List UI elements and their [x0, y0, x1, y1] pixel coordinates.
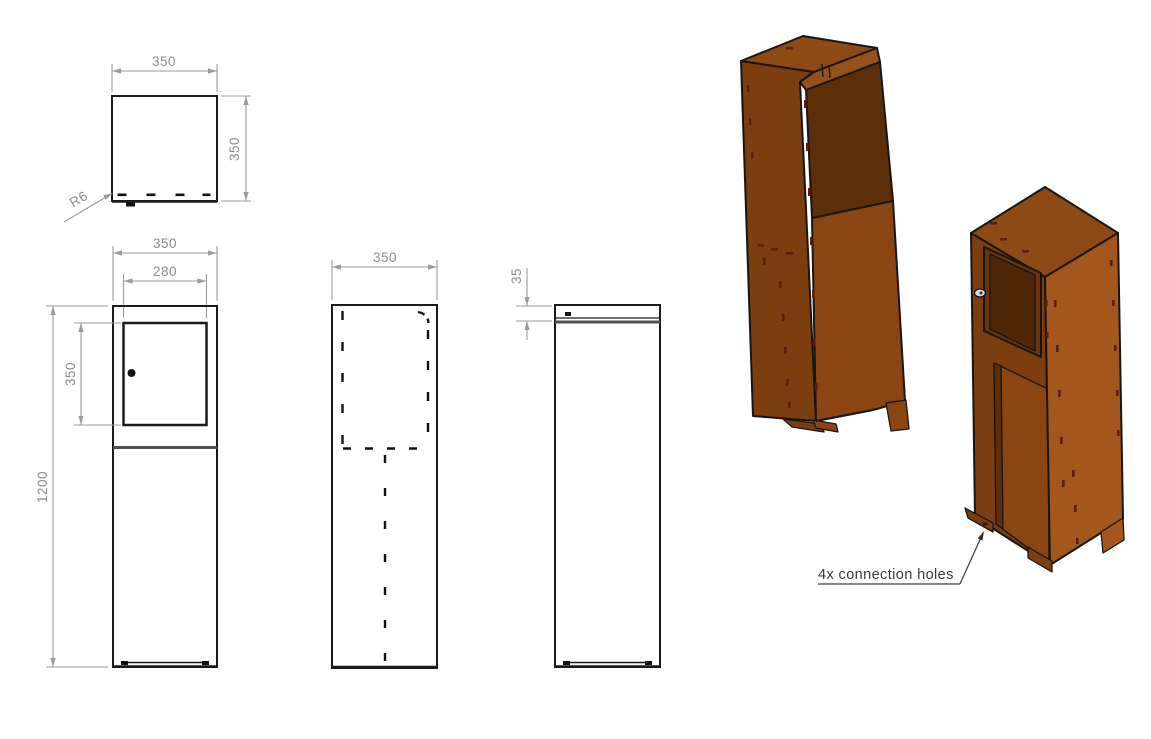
- dim-top-depth: 350: [227, 137, 242, 161]
- annotation-arrow: [978, 531, 984, 541]
- weld-tab: [749, 118, 751, 125]
- weld-tab: [763, 258, 766, 265]
- weld-tab: [1114, 345, 1117, 351]
- iso1-slot-tick: [822, 64, 823, 77]
- door-outline: [124, 323, 207, 425]
- top-view-outline: [112, 96, 217, 201]
- weld-tab: [757, 244, 764, 247]
- dim-corner-radius: R6: [67, 188, 90, 210]
- weld-tab: [1054, 300, 1057, 307]
- iso2-connection-hole: [982, 522, 987, 526]
- dim-rear-width: 350: [373, 250, 397, 265]
- weld-tab: [806, 143, 809, 151]
- dim-lid-height: 35: [509, 268, 524, 284]
- dimension-arrow: [50, 658, 55, 667]
- dimension-arrow: [50, 306, 55, 315]
- dimension-arrow: [78, 323, 83, 332]
- annotation-connection-holes: 4x connection holes: [818, 531, 984, 584]
- dimension-arrow: [198, 278, 207, 283]
- technical-drawing-canvas: 350 350 R6 1200 350: [0, 0, 1151, 739]
- dimension-arrow: [243, 96, 248, 105]
- weld-tab: [1056, 345, 1059, 352]
- iso2-inner-wall-strip: [994, 363, 1003, 529]
- slot-mark: [118, 194, 127, 197]
- dimension-arrow: [524, 321, 529, 330]
- iso-view-rear: [741, 36, 909, 432]
- weld-tab: [782, 314, 785, 321]
- weld-tab: [784, 347, 787, 354]
- weld-tab: [751, 152, 753, 159]
- weld-tab: [1058, 390, 1061, 397]
- weld-tab: [1117, 430, 1120, 436]
- hinge-mark: [565, 312, 571, 316]
- weld-tab: [1046, 332, 1049, 338]
- dimension-arrow: [428, 264, 437, 269]
- slot-mark: [147, 194, 156, 197]
- iso2-knob-keyhole: [980, 292, 983, 295]
- foot-mark: [202, 661, 209, 665]
- foot-mark: [645, 661, 652, 665]
- side-view-outline: [555, 305, 660, 667]
- weld-tab: [1110, 260, 1113, 266]
- iso1-recess-panel: [806, 62, 893, 218]
- weld-tab: [990, 222, 997, 225]
- hidden-line-corner: [418, 312, 429, 323]
- slot-mark: [203, 194, 211, 197]
- dim-door-width: 280: [153, 264, 177, 279]
- dimension-arrow: [113, 250, 122, 255]
- dimension-arrow: [78, 416, 83, 425]
- dimension-arrow: [332, 264, 341, 269]
- iso1-slot-tick: [829, 65, 830, 78]
- iso1-right-foot: [886, 400, 909, 431]
- weld-tab: [1022, 250, 1029, 253]
- dim-total-height: 1200: [35, 471, 50, 503]
- weld-tab: [1045, 300, 1048, 306]
- dimension-arrow: [112, 68, 121, 73]
- weld-tab: [810, 237, 813, 245]
- dimension-arrow: [208, 250, 217, 255]
- dimension-arrow: [243, 192, 248, 201]
- weld-tab: [786, 379, 789, 386]
- weld-tab: [788, 402, 791, 408]
- weld-tab: [804, 100, 807, 108]
- tab-mark: [126, 203, 135, 207]
- weld-tab: [1062, 480, 1065, 487]
- weld-tab: [812, 290, 815, 298]
- annotation-leader-line: [960, 533, 983, 584]
- dim-door-height: 350: [63, 362, 78, 386]
- weld-tab: [1116, 390, 1119, 396]
- dimension-arrow: [208, 68, 217, 73]
- weld-tab: [813, 338, 816, 346]
- dimension-arrow: [124, 278, 133, 283]
- weld-tab: [1072, 470, 1075, 477]
- weld-tab: [747, 85, 749, 92]
- dimension-arrow: [524, 297, 529, 306]
- side-view: 35: [509, 268, 660, 667]
- technical-drawing-sheet: 350 350 R6 1200 350: [0, 0, 1151, 739]
- weld-tab: [786, 47, 793, 50]
- rear-view: 350: [332, 250, 437, 668]
- iso-view-front: [965, 187, 1124, 572]
- front-view-outline: [113, 306, 217, 667]
- iso1-lower-interior: [812, 201, 905, 421]
- weld-tab: [1076, 538, 1079, 544]
- annotation-label: 4x connection holes: [818, 567, 954, 583]
- foot-mark: [121, 661, 128, 665]
- iso1-left-face: [741, 61, 816, 421]
- weld-tab: [1074, 505, 1077, 512]
- weld-tab: [771, 248, 778, 251]
- weld-tab: [815, 383, 818, 391]
- front-view: 1200 350 280 350: [35, 236, 217, 667]
- dim-top-width: 350: [152, 54, 176, 69]
- top-view: 350 350 R6: [64, 54, 251, 222]
- weld-tab: [1112, 300, 1115, 306]
- weld-tab: [808, 188, 811, 196]
- foot-mark: [563, 661, 570, 665]
- weld-tab: [779, 281, 782, 288]
- door-knob: [128, 369, 136, 377]
- weld-tab: [786, 252, 793, 255]
- rear-view-outline: [332, 305, 437, 668]
- iso2-right-face: [1045, 233, 1123, 565]
- weld-tab: [1000, 238, 1007, 241]
- slot-mark: [176, 194, 185, 197]
- weld-tab: [1060, 437, 1063, 444]
- dim-front-width: 350: [153, 236, 177, 251]
